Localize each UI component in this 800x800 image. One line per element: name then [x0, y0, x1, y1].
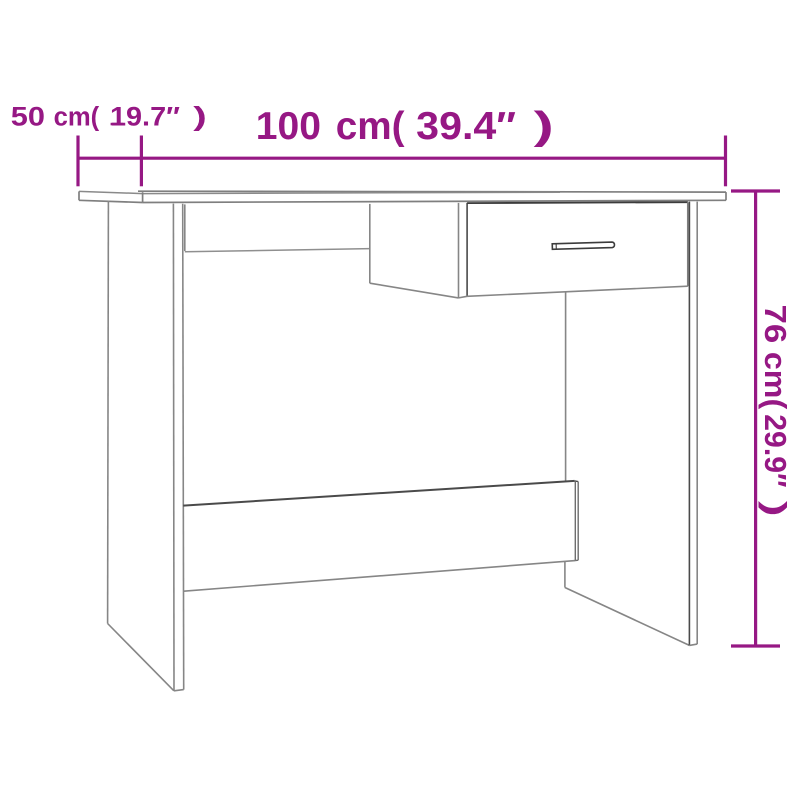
svg-text:39.4″: 39.4″: [416, 105, 516, 148]
svg-text:cm(: cm(: [336, 105, 405, 148]
svg-text:50: 50: [11, 101, 45, 131]
svg-text:29.9″: 29.9″: [758, 414, 793, 487]
svg-text:19.7″: 19.7″: [110, 101, 180, 131]
svg-text:cm(: cm(: [758, 352, 793, 410]
svg-text:): ): [193, 102, 206, 132]
svg-text:cm(: cm(: [54, 101, 100, 131]
svg-text:76: 76: [758, 305, 793, 344]
svg-text:): ): [758, 501, 793, 516]
svg-text:100: 100: [256, 105, 321, 148]
svg-text:): ): [534, 104, 554, 148]
